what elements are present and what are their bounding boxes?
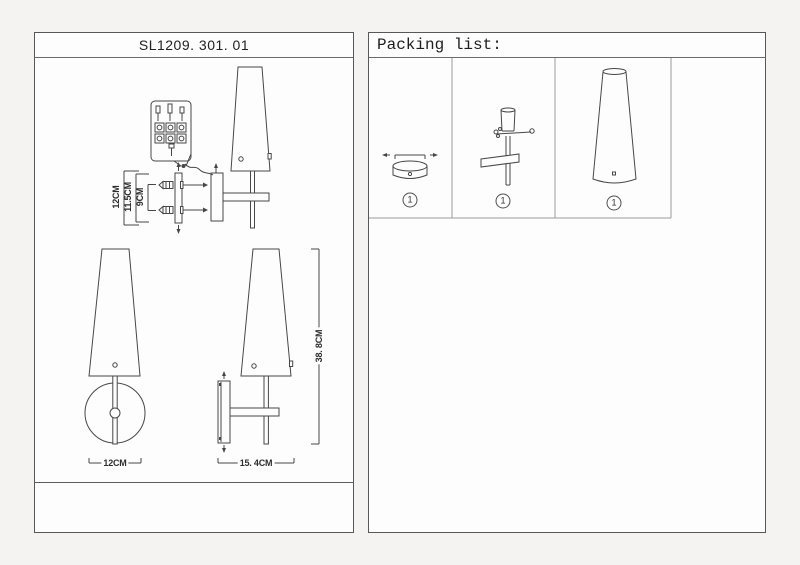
screw-anchor-bottom — [159, 207, 208, 214]
packing-item-shade-drawing — [593, 69, 636, 184]
qty-badge-shade: 1 — [607, 196, 622, 211]
packing-item-canopy-drawing — [382, 153, 438, 179]
front-view-drawing — [85, 249, 145, 463]
screw-anchor-top — [159, 182, 208, 189]
connector-detail-callout — [151, 101, 191, 168]
dim-front-width: 12CM — [101, 458, 128, 468]
right-arrow-icon — [430, 153, 438, 157]
qty-badge-canopy: 1 — [403, 193, 418, 208]
packing-list-panel: Packing list: — [368, 32, 766, 533]
packing-item-bracket-drawing — [481, 108, 534, 185]
lamp-technical-drawing — [35, 33, 352, 531]
up-arrow-icon — [214, 163, 218, 173]
dim-mount-total: 12CM — [111, 185, 121, 208]
spec-sheet-page: { "colors": { "page_bg": "#f4f3f1", "pan… — [0, 0, 800, 565]
side-view-drawing — [218, 249, 319, 463]
packing-list-drawing — [369, 33, 764, 531]
dim-side-depth: 15. 4CM — [238, 458, 275, 468]
dim-mount-inner: 9CM — [135, 188, 145, 206]
dim-total-height: 38. 8CM — [314, 328, 324, 365]
qty-badge-bracket: 1 — [496, 194, 511, 209]
drawing-panel: SL1209. 301. 01 — [34, 32, 354, 533]
assembled-side-view-drawing — [185, 67, 271, 228]
left-arrow-icon — [382, 153, 390, 157]
down-arrow-icon — [177, 225, 181, 234]
dim-mount-mid: 11.5CM — [123, 182, 133, 212]
up-arrow-icon — [222, 371, 226, 379]
down-arrow-icon — [222, 445, 226, 453]
panel-footer-divider — [35, 482, 353, 483]
